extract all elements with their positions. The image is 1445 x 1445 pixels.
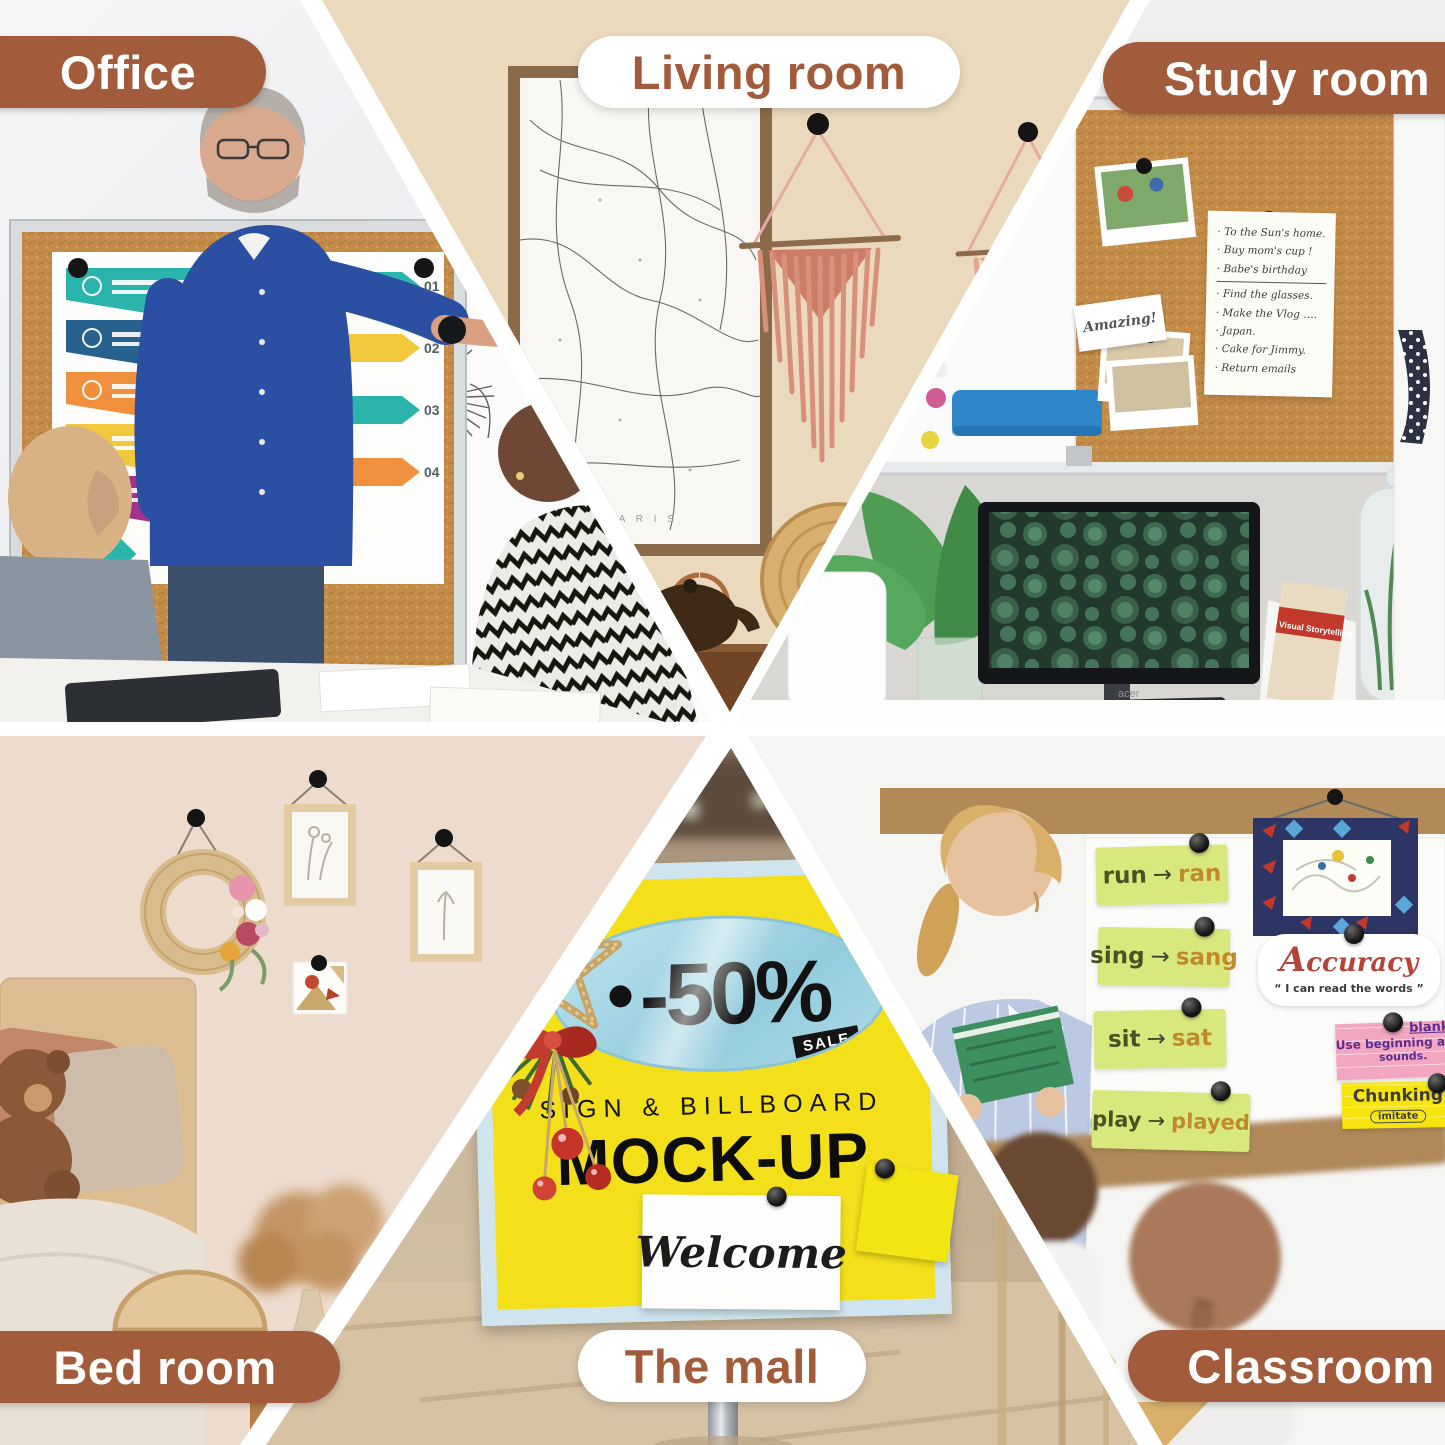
desk-top (722, 700, 1445, 730)
todo-line: Cake for Jimmy. (1215, 340, 1325, 361)
arrow-icon: → (1152, 862, 1172, 888)
pinned-card (293, 955, 347, 1014)
todo-line: Buy mom's cup ! (1217, 241, 1327, 262)
magnet-dot (1136, 158, 1152, 174)
word-card: play → played (1091, 1090, 1250, 1152)
word-from: play (1092, 1107, 1142, 1132)
label-the-mall: The mall (578, 1330, 866, 1402)
magnet-dot (1181, 997, 1201, 1017)
yellow-card: Chunking imitate (1342, 1081, 1445, 1129)
todo-line: To the Sun's home. (1217, 223, 1327, 244)
word-card: sit → sat (1094, 1009, 1227, 1069)
word-to: played (1171, 1109, 1250, 1135)
word-to: sang (1176, 944, 1239, 971)
word-from: run (1102, 862, 1147, 889)
word-from: sit (1108, 1026, 1141, 1053)
magnet-dot (187, 809, 205, 827)
arrow-icon: → (1150, 944, 1170, 970)
label-living-room: Living room (578, 36, 960, 108)
file-organizer (1258, 581, 1356, 718)
round-magnet-white (932, 362, 948, 378)
magnet-dot (767, 1186, 787, 1206)
label-classroom: Classroom (1128, 1330, 1445, 1402)
arrow-icon: → (1146, 1026, 1166, 1052)
round-magnet-pink (926, 388, 946, 408)
label-bed-room: Bed room (0, 1331, 340, 1403)
magnet-dot (309, 770, 327, 788)
pink-card-word: blanket (1409, 1019, 1445, 1036)
sticky-note (856, 1163, 959, 1262)
humidifier (788, 572, 886, 712)
yellow-card-sub: imitate (1370, 1110, 1427, 1124)
poster-number: 02 (424, 340, 440, 356)
word-from: sing (1090, 943, 1145, 970)
sale-tag: SALE (792, 1025, 861, 1060)
todo-line: Japan. (1215, 322, 1325, 343)
magnet-dot (1194, 917, 1214, 937)
todo-line: Return emails (1214, 358, 1324, 379)
word-to: sat (1172, 1025, 1213, 1052)
magnet-dot (1327, 789, 1343, 805)
poster-number: 04 (424, 464, 440, 480)
magnet-dot (807, 113, 829, 135)
magnet-dot (68, 258, 88, 278)
todo-line: Find the glasses. (1216, 285, 1326, 306)
magnet-dot (1211, 1081, 1232, 1102)
accuracy-card: Accuracy “ I can read the words ” (1258, 934, 1440, 1006)
todo-line: Make the Vlog …. (1216, 303, 1326, 324)
poster-number: 01 (424, 278, 440, 294)
magnet-dot (414, 258, 434, 278)
magnet-dot (1427, 1073, 1445, 1093)
wristwatch (438, 316, 466, 344)
magnet-dot (435, 829, 453, 847)
accuracy-title: Accuracy (1258, 940, 1440, 980)
magnet-dot (311, 955, 327, 971)
label-office: Office (0, 36, 266, 108)
label-study-room: Study room (1103, 42, 1445, 114)
magnet-dot (1344, 924, 1364, 944)
word-card: sing → sang (1098, 927, 1231, 987)
poster-number: 03 (424, 402, 440, 418)
arrow-icon: → (1147, 1108, 1165, 1132)
word-to: ran (1178, 860, 1222, 887)
magnet-dot (1383, 1012, 1404, 1033)
map-caption: P A R I S (602, 514, 678, 525)
magnet-dot (1018, 122, 1038, 142)
pink-card: blanket Use beginning and ending sounds. (1335, 1020, 1445, 1081)
accuracy-quote: “ I can read the words ” (1258, 982, 1440, 995)
word-card: run → ran (1095, 844, 1228, 905)
magnet-dot (1189, 833, 1210, 854)
product-collage: { "product_labels": { "office": "Office"… (0, 0, 1445, 1445)
todo-note: To the Sun's home. Buy mom's cup ! Babe'… (1204, 211, 1336, 398)
monitor-brand: acer (1118, 688, 1140, 700)
todo-line: Babe's birthday (1216, 260, 1326, 285)
round-magnet-yellow (921, 431, 939, 449)
